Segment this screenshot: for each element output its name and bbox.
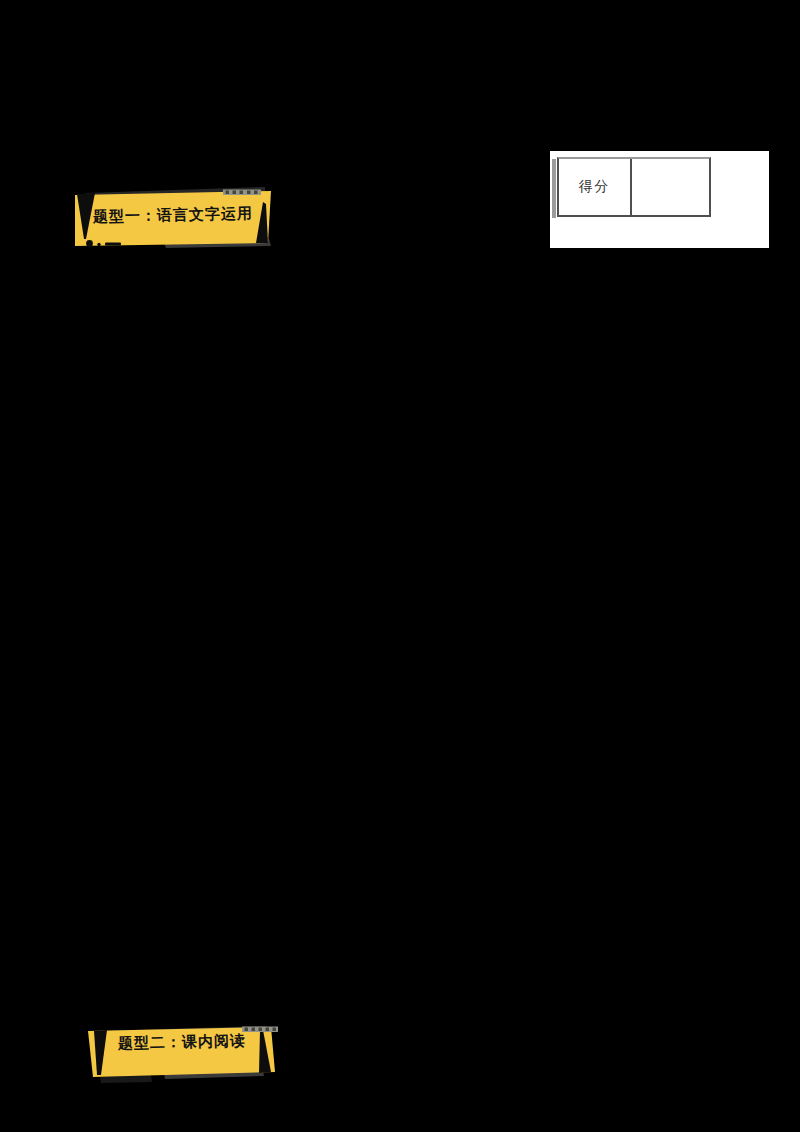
score-panel: 得分 [550,151,769,248]
watermark-tick [254,191,258,195]
watermark-tick [245,1028,249,1032]
score-table-left-shadow [552,159,556,218]
ribbon-dash [105,243,121,246]
section-heading-banner-1: 题型一：语言文字运用 [72,186,274,252]
watermark-tick [226,191,230,195]
ribbon-dot-large [86,240,93,247]
watermark-tick [233,191,237,195]
section-heading-banner-2: 题型二：课内阅读 [84,1024,280,1086]
watermark-tick [240,191,244,195]
score-label-cell: 得分 [559,159,632,215]
watermark-tick [247,191,251,195]
ribbon-dot-small [97,243,100,246]
score-table: 得分 [557,157,711,217]
score-label: 得分 [579,178,611,196]
exam-page: 题型一：语言文字运用 得分 题型二：课内阅读 [0,0,800,1132]
score-value-cell [632,159,709,215]
